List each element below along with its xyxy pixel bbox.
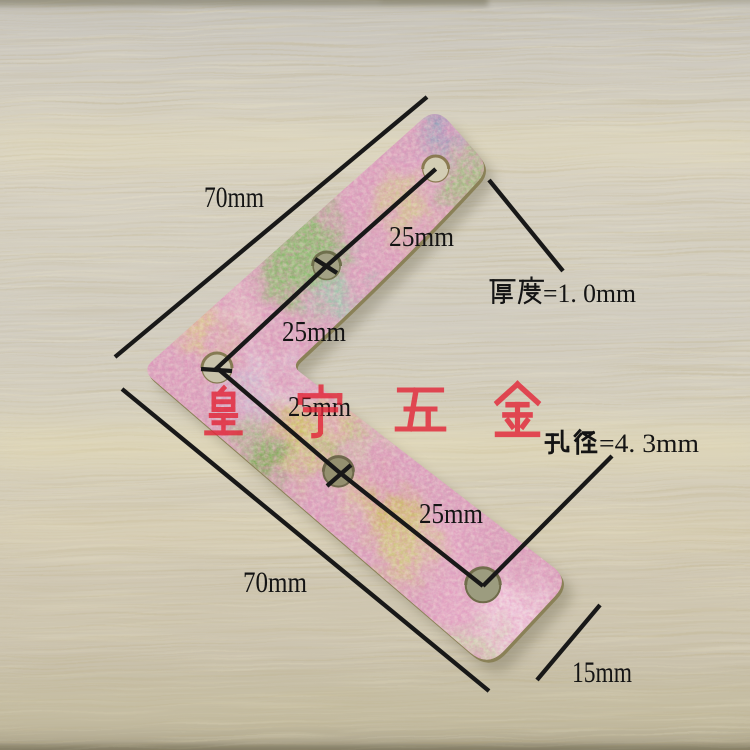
svg-text:=4. 3mm: =4. 3mm [599, 429, 699, 458]
svg-text:25mm: 25mm [282, 316, 346, 348]
svg-text:70mm: 70mm [243, 566, 307, 599]
svg-text:70mm: 70mm [204, 181, 264, 214]
svg-text:15mm: 15mm [572, 656, 632, 689]
svg-text:=1. 0mm: =1. 0mm [543, 279, 636, 308]
svg-text:25mm: 25mm [419, 498, 483, 530]
svg-text:25mm: 25mm [389, 221, 454, 253]
